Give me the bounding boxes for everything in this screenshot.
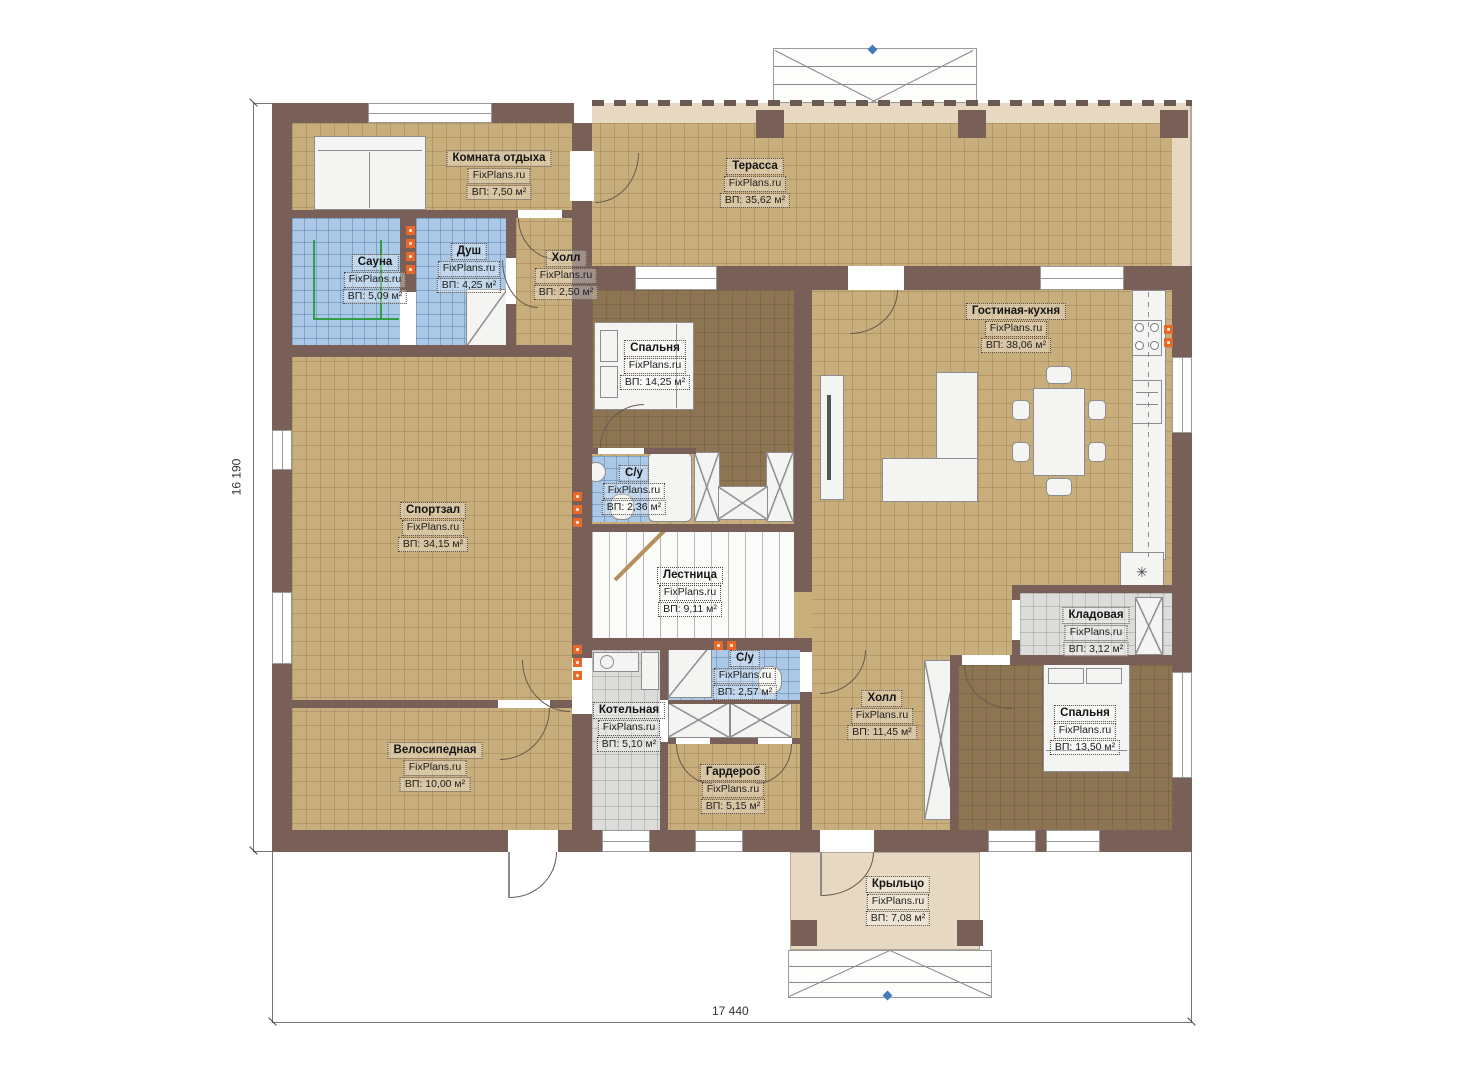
dimension-line-bottom (272, 1022, 1192, 1023)
room-label-shower: Душ FixPlans.ru ВП: 4,25 м² (437, 243, 501, 293)
room-label-hall2: Холл FixPlans.ru ВП: 11,45 м² (847, 690, 917, 740)
wall (292, 345, 572, 357)
door-leaf (820, 852, 822, 896)
porch-column (791, 920, 817, 946)
shower-tray (668, 644, 712, 698)
dimension-ext (272, 852, 273, 1022)
dining-table (1033, 388, 1085, 476)
heater-dot (573, 518, 582, 527)
room-label-rest-room: Комната отдыха FixPlans.ru ВП: 7,50 м² (446, 150, 551, 200)
room-label-living-kitchen: Гостиная-кухня FixPlans.ru ВП: 38,06 м² (966, 303, 1066, 353)
window (1040, 266, 1124, 290)
window (368, 103, 492, 123)
room-label-terrace: Терасса FixPlans.ru ВП: 35,62 м² (720, 158, 790, 208)
door-opening (1012, 600, 1020, 640)
watermark: FixPlans.ru (603, 483, 666, 499)
dimension-line-left (253, 103, 254, 852)
chair (1088, 400, 1106, 420)
chair (1046, 478, 1072, 496)
dimension-ext (1191, 852, 1192, 1022)
heater-dot (1164, 338, 1173, 347)
door-leaf (508, 852, 510, 898)
heater-icon (573, 492, 582, 527)
heater-dot (406, 265, 415, 274)
wardrobe (668, 702, 730, 738)
wall (1012, 585, 1172, 593)
heater-icon (573, 645, 582, 680)
door-opening (570, 151, 594, 201)
heater-dot (406, 252, 415, 261)
door-opening (820, 830, 874, 852)
window (272, 430, 292, 470)
sink-line (1136, 404, 1158, 405)
window (988, 830, 1036, 852)
pillow (600, 366, 618, 398)
heater-dot (573, 671, 582, 680)
watermark: FixPlans.ru (1065, 625, 1128, 641)
stove-burner-icon (1150, 341, 1159, 350)
pillow (600, 330, 618, 362)
heater-dot (406, 226, 415, 235)
terrace-column (958, 110, 986, 138)
wall (668, 700, 800, 704)
room-label-stairs: Лестница FixPlans.ru ВП: 9,11 м² (657, 567, 723, 617)
watermark: FixPlans.ru (851, 708, 914, 724)
stove-burner-icon (1135, 341, 1144, 350)
room-label-porch: Крыльцо FixPlans.ru ВП: 7,08 м² (866, 876, 930, 926)
sofa-line (318, 150, 422, 151)
window (602, 830, 650, 852)
passage-opening (794, 592, 812, 638)
heater-dot (573, 492, 582, 501)
watermark: FixPlans.ru (344, 272, 407, 288)
wardrobe (718, 486, 768, 520)
watermark: FixPlans.ru (985, 321, 1048, 337)
window (1172, 357, 1192, 433)
room-label-boiler: Котельная FixPlans.ru ВП: 5,10 м² (593, 702, 665, 752)
chair (1046, 366, 1072, 384)
snowflake-icon: ✳ (1136, 564, 1148, 581)
bedroom1-passage-floor (718, 452, 768, 488)
stove-burner-icon (1135, 323, 1144, 332)
door-opening (848, 266, 904, 290)
watermark: FixPlans.ru (867, 894, 930, 910)
watermark: FixPlans.ru (402, 520, 465, 536)
door-opening (800, 652, 812, 692)
storage-shelf (1135, 597, 1163, 655)
entry-steps-top (773, 48, 977, 103)
chair (1012, 442, 1030, 462)
heater-icon (406, 226, 415, 274)
wall (950, 655, 958, 830)
window (635, 266, 717, 290)
heater-dot (406, 239, 415, 248)
watermark: FixPlans.ru (438, 261, 501, 277)
floor-plan-canvas: 16 190 17 440 (0, 0, 1474, 1080)
boiler (641, 652, 659, 690)
step-line (774, 84, 976, 85)
room-label-bedroom1: Спальня FixPlans.ru ВП: 14,25 м² (620, 340, 690, 390)
door-opening (508, 830, 558, 852)
porch-column (957, 920, 983, 946)
wall (272, 103, 292, 852)
room-label-sauna: Сауна FixPlans.ru ВП: 5,09 м² (343, 254, 407, 304)
sink-line (1136, 392, 1158, 393)
wardrobe (730, 702, 792, 738)
sofa (314, 136, 426, 210)
door-opening (518, 210, 562, 218)
sauna-bench-line (313, 240, 315, 320)
room-label-wardrobe: Гардероб FixPlans.ru ВП: 5,15 м² (700, 764, 766, 814)
watermark: FixPlans.ru (714, 668, 777, 684)
step-line (789, 966, 991, 967)
sofa-corner-vertical (936, 372, 978, 462)
pillow (1086, 668, 1122, 684)
heater-dot (714, 641, 723, 650)
window (1172, 672, 1192, 778)
porch-steps (788, 950, 992, 998)
wall (592, 524, 794, 532)
heater-dot (573, 505, 582, 514)
door-opening (962, 655, 1010, 665)
terrace-column (1160, 110, 1188, 138)
chair (1012, 400, 1030, 420)
watermark: FixPlans.ru (404, 760, 467, 776)
boiler-sink (600, 655, 614, 669)
wardrobe (766, 452, 794, 522)
kitchen-sink (1132, 380, 1162, 424)
watermark: FixPlans.ru (468, 168, 531, 184)
watermark: FixPlans.ru (702, 782, 765, 798)
watermark: FixPlans.ru (659, 585, 722, 601)
room-label-bicycle: Велосипедная FixPlans.ru ВП: 10,00 м² (388, 742, 483, 792)
sofa-corner-horizontal (882, 458, 978, 502)
door-arc (510, 852, 557, 898)
counter-line (1148, 292, 1149, 558)
wall (572, 638, 812, 650)
room-label-bedroom2: Спальня FixPlans.ru ВП: 13,50 м² (1050, 705, 1120, 755)
heater-dot (727, 641, 736, 650)
watermark: FixPlans.ru (1054, 723, 1117, 739)
chair (1088, 442, 1106, 462)
room-label-storage: Кладовая FixPlans.ru ВП: 3,12 м² (1062, 607, 1129, 657)
tv-icon (827, 395, 831, 480)
wardrobe (694, 452, 720, 522)
watermark: FixPlans.ru (598, 720, 661, 736)
sofa-line (369, 152, 370, 208)
dimension-label-left: 16 190 (229, 459, 243, 496)
room-label-wc2: С/у FixPlans.ru ВП: 2,57 м² (713, 650, 777, 700)
heater-dot (1164, 325, 1173, 334)
room-label-wc1: С/у FixPlans.ru ВП: 2,36 м² (602, 465, 666, 515)
terrace-open-edge (592, 100, 1192, 106)
watermark: FixPlans.ru (535, 268, 598, 284)
room-label-hall-small: Холл FixPlans.ru ВП: 2,50 м² (534, 250, 598, 300)
watermark: FixPlans.ru (624, 358, 687, 374)
shower-tray (466, 289, 508, 347)
stove-burner-icon (1150, 323, 1159, 332)
watermark: FixPlans.ru (724, 176, 787, 192)
window (695, 830, 743, 852)
terrace-edge-line (1190, 103, 1192, 266)
dimension-label-bottom: 17 440 (712, 1004, 749, 1018)
window (272, 592, 292, 664)
door-opening (598, 448, 644, 454)
tv-stand (820, 375, 844, 500)
heater-dot (573, 645, 582, 654)
sauna-bench-line (313, 318, 399, 320)
wall (572, 123, 592, 830)
room-label-gym: Спортзал FixPlans.ru ВП: 34,15 м² (398, 502, 468, 552)
heater-icon (1164, 325, 1173, 347)
heater-dot (573, 658, 582, 667)
pillow (1048, 668, 1084, 684)
terrace-column (756, 110, 784, 138)
heater-icon (714, 641, 736, 650)
window (1046, 830, 1100, 852)
